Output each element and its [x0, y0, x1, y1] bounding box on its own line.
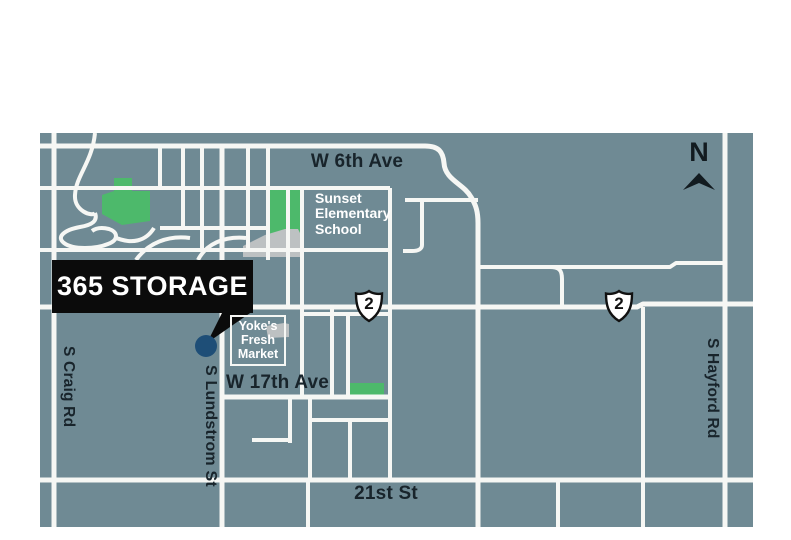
callout-365-storage: 365 STORAGE: [52, 260, 253, 313]
park-northwest: [102, 178, 150, 225]
compass-north: N: [675, 137, 723, 193]
highway-2-shield-west: 2: [354, 289, 384, 323]
market-label-line1: Yoke's: [232, 320, 284, 334]
callout-label: 365 STORAGE: [57, 271, 248, 302]
market-label-line2: Fresh: [232, 334, 284, 348]
location-dot: [195, 335, 217, 357]
school-label-line3: School: [315, 222, 390, 237]
school-label: Sunset Elementary School: [315, 191, 390, 237]
route-number: 2: [354, 294, 384, 314]
green-strip-17th: [350, 383, 384, 395]
compass-n-label: N: [675, 137, 723, 168]
market-label: Yoke's Fresh Market: [232, 320, 284, 361]
north-arrow-icon: [675, 170, 723, 192]
street-label-s-craig-rd: S Craig Rd: [59, 346, 77, 427]
market-block-outline: Yoke's Fresh Market: [230, 315, 286, 366]
school-building: [243, 229, 302, 257]
street-label-s-lundstrom-st: S Lundstrom St: [201, 365, 219, 487]
highway-2-shield-east: 2: [604, 289, 634, 323]
street-label-w-6th-ave: W 6th Ave: [310, 151, 404, 173]
street-label-w-17th-ave: W 17th Ave: [226, 372, 326, 394]
school-label-line1: Sunset: [315, 191, 390, 206]
street-label-s-hayford-rd: S Hayford Rd: [703, 338, 721, 439]
map-canvas: 2 2 W 6th Ave W 17th Ave 21st St S Craig…: [0, 0, 791, 540]
school-label-line2: Elementary: [315, 206, 390, 221]
route-number: 2: [604, 294, 634, 314]
map-area: 2 2 W 6th Ave W 17th Ave 21st St S Craig…: [40, 133, 753, 527]
market-label-line3: Market: [232, 348, 284, 362]
street-label-21st-st: 21st St: [346, 483, 426, 505]
map-graphics: [40, 133, 753, 527]
